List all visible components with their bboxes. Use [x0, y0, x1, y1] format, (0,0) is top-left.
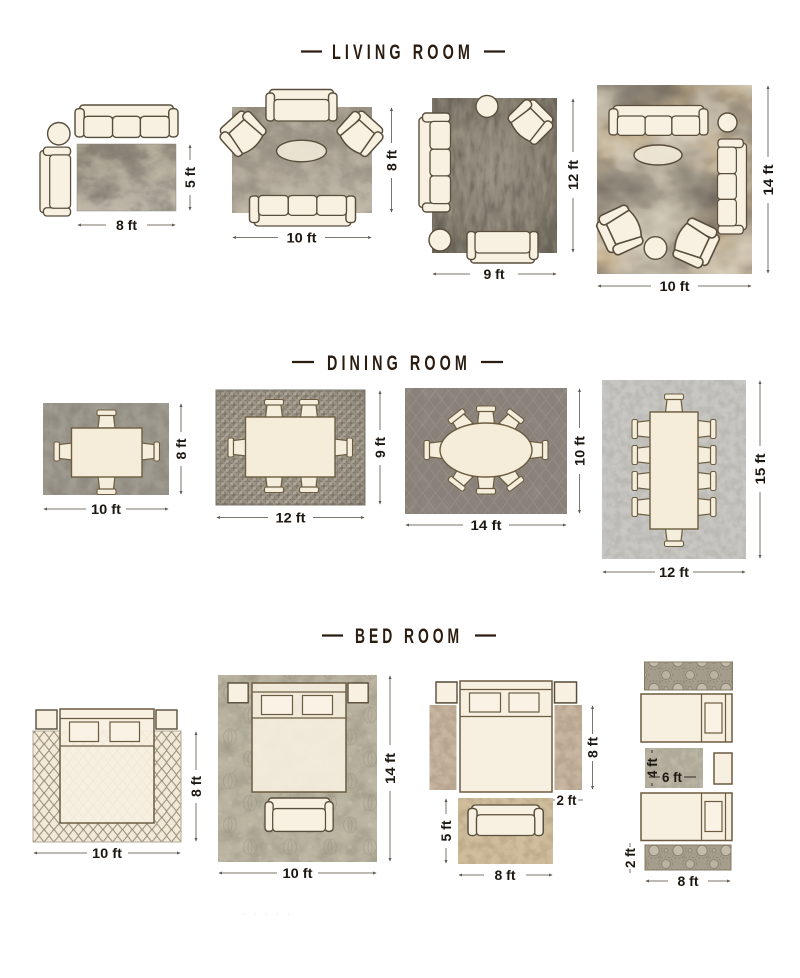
svg-text:12 ft: 12 ft	[659, 564, 689, 580]
svg-text:10 ft: 10 ft	[660, 278, 690, 294]
svg-text:14 ft: 14 ft	[760, 164, 776, 195]
svg-text:8 ft: 8 ft	[116, 217, 137, 233]
svg-text:14 ft: 14 ft	[471, 517, 502, 533]
svg-text:10 ft: 10 ft	[572, 436, 588, 466]
svg-text:4 ft: 4 ft	[644, 758, 660, 778]
svg-text:9 ft: 9 ft	[484, 266, 505, 282]
svg-text:10 ft: 10 ft	[92, 845, 122, 861]
svg-text:5 ft: 5 ft	[182, 167, 198, 188]
svg-text:12 ft: 12 ft	[276, 510, 306, 526]
svg-text:8 ft: 8 ft	[495, 867, 516, 883]
svg-text:8 ft: 8 ft	[678, 873, 699, 889]
svg-text:DINING ROOM: DINING ROOM	[327, 352, 471, 375]
svg-text:14 ft: 14 ft	[382, 753, 398, 784]
svg-text:8 ft: 8 ft	[585, 737, 601, 758]
svg-text:10 ft: 10 ft	[287, 230, 317, 246]
svg-text:. . . . .: . . . . .	[243, 907, 293, 917]
svg-text:2 ft: 2 ft	[557, 792, 577, 808]
svg-text:9 ft: 9 ft	[372, 437, 388, 458]
svg-text:15 ft: 15 ft	[752, 453, 768, 484]
svg-text:8 ft: 8 ft	[384, 150, 400, 171]
svg-text:5 ft: 5 ft	[438, 820, 454, 841]
svg-text:10 ft: 10 ft	[283, 865, 313, 881]
svg-text:2 ft: 2 ft	[622, 848, 638, 868]
svg-text:8 ft: 8 ft	[188, 776, 204, 797]
svg-text:BED ROOM: BED ROOM	[355, 625, 463, 648]
svg-text:12 ft: 12 ft	[565, 160, 581, 190]
svg-text:6 ft: 6 ft	[662, 769, 682, 785]
svg-text:8 ft: 8 ft	[173, 438, 189, 459]
svg-text:10 ft: 10 ft	[91, 501, 121, 517]
svg-text:LIVING ROOM: LIVING ROOM	[332, 41, 474, 64]
